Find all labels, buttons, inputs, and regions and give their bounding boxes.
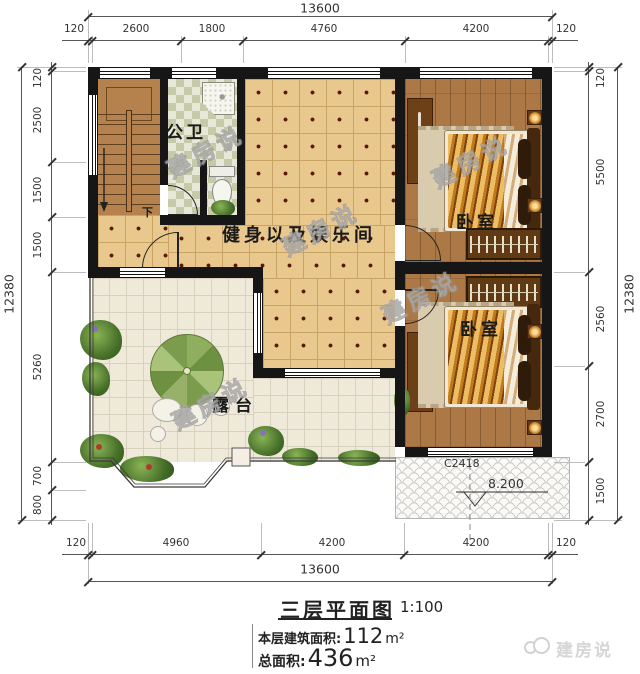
door-bathroom-leaf <box>168 214 198 216</box>
wall-hall-south <box>88 267 263 278</box>
stair-direction-label: 下 <box>142 204 153 220</box>
dim-bottom-seg-1: 4960 <box>163 537 190 549</box>
wall-right <box>542 79 552 457</box>
room-label-bedroom-top: 卧室 <box>456 208 498 233</box>
dim-top-seg-1: 2600 <box>123 23 150 35</box>
window-hall-south <box>120 267 165 278</box>
dim-right-overall-line <box>617 67 618 520</box>
lower-roof-area <box>395 457 570 519</box>
dim-bottom-overall: 13600 <box>300 562 340 577</box>
window-code-label: C2418 <box>444 457 480 470</box>
terrace-parasol-center <box>183 367 191 375</box>
dim-left-chain-line <box>51 62 52 525</box>
bedroom-bottom-lamp-1 <box>529 326 541 338</box>
title-block-divider <box>252 624 253 668</box>
terrace-plant-5-flower <box>260 430 266 436</box>
total-area-line: 总面积: 436 m² <box>258 644 376 672</box>
dim-left-seg-6: 800 <box>32 495 44 515</box>
terrace-plant-2 <box>82 362 110 396</box>
dim-top-seg-3: 4760 <box>311 23 338 35</box>
dim-right-seg-2: 2560 <box>595 306 607 333</box>
title-underline <box>278 618 392 620</box>
dim-left-seg-0: 120 <box>32 68 44 88</box>
dim-bottom-chain-line <box>62 554 578 555</box>
window-bathroom-top <box>172 67 216 79</box>
dim-bottom-seg-2: 4200 <box>319 537 346 549</box>
dim-left-seg-5: 700 <box>32 466 44 486</box>
window-bedroom-top <box>420 67 532 79</box>
dim-top-seg-4: 4200 <box>463 23 490 35</box>
dim-right-seg-4: 1500 <box>595 478 607 505</box>
dim-top-seg-2: 1800 <box>199 23 226 35</box>
room-label-bedroom-bottom: 卧室 <box>460 315 502 340</box>
dim-top-seg-5: 120 <box>556 23 576 35</box>
door-bedroom-top-leaf <box>405 260 441 262</box>
bathroom-plant <box>211 200 235 216</box>
dim-bottom-seg-3: 4200 <box>463 537 490 549</box>
window-stairwell-top <box>100 67 150 79</box>
wall-bedroom-divider <box>405 262 542 274</box>
window-gym-south <box>285 368 380 378</box>
dim-right-seg-3: 2700 <box>595 401 607 428</box>
dim-top-chain-line <box>62 40 578 41</box>
window-c2418 <box>428 447 533 457</box>
dim-left-seg-1: 2500 <box>32 107 44 134</box>
terrace-plant-7 <box>338 450 380 466</box>
logo-text: 建房说 <box>556 636 613 661</box>
bedroom-top-wardrobe-rail <box>470 244 538 245</box>
bedroom-top-pillow-1 <box>518 139 531 179</box>
bedroom-top-lamp-1 <box>529 112 541 124</box>
window-gym-west <box>253 293 263 353</box>
window-gym-top <box>268 67 380 79</box>
dim-right-seg-1: 5500 <box>595 159 607 186</box>
bedroom-top-lamp-2 <box>529 200 541 212</box>
dim-left-seg-3: 1500 <box>32 232 44 259</box>
dim-left-overall: 12380 <box>2 274 17 314</box>
drawing-scale: 1:100 <box>400 598 443 616</box>
dim-right-seg-0: 120 <box>595 68 607 88</box>
floor-plan-canvas: 公卫 健身以及娱乐间 卧室 卧室 露台 下 C2418 8.200 建房说 建房… <box>0 0 640 674</box>
terrace-plant-4-flower <box>146 464 152 470</box>
bedroom-bottom-wardrobe-rail <box>470 292 538 293</box>
terrace-plant-3-flower <box>96 444 102 450</box>
floor-area-unit: m² <box>385 631 404 647</box>
door-hall-gym-leaf <box>177 232 179 268</box>
dim-left-overall-line <box>21 67 22 520</box>
wall-middle-upper <box>395 79 405 225</box>
dim-top-overall-line <box>88 16 552 17</box>
total-area-label: 总面积: <box>258 651 306 671</box>
terrace-chair-3 <box>150 426 166 442</box>
dim-bottom-seg-4: 120 <box>556 537 576 549</box>
wall-middle-lower <box>395 326 405 447</box>
dim-bottom-seg-0: 120 <box>66 537 86 549</box>
dim-right-overall: 12380 <box>622 274 637 314</box>
terrace-plant-1 <box>80 320 122 360</box>
stair-divider <box>126 110 132 212</box>
terrace-plant-3 <box>80 434 124 468</box>
logo-house-icon <box>533 637 550 654</box>
dim-right-chain-line <box>588 62 589 525</box>
bedroom-bottom-lamp-2 <box>529 422 541 434</box>
total-area-value: 436 <box>308 644 354 672</box>
gym-floor-lower <box>263 278 395 368</box>
terrace-plant-6 <box>282 448 318 466</box>
gym-floor-upper <box>245 79 395 225</box>
total-area-unit: m² <box>355 652 376 670</box>
toilet-tank <box>209 166 235 177</box>
dim-left-seg-2: 1500 <box>32 177 44 204</box>
roof-elevation-label: 8.200 <box>488 476 524 491</box>
window-stairwell-left <box>88 95 98 175</box>
brand-logo: 建房说 <box>524 634 634 662</box>
dim-top-overall: 13600 <box>300 1 340 16</box>
dim-top-seg-0: 120 <box>64 23 84 35</box>
bedroom-bottom-pillow-2 <box>518 361 531 401</box>
dim-left-seg-4: 5260 <box>32 354 44 381</box>
dim-bottom-overall-line <box>88 581 552 582</box>
wall-bathroom-right <box>237 79 245 225</box>
terrace-plant-5 <box>248 426 284 456</box>
terrace-plant-1-flower <box>92 326 98 332</box>
